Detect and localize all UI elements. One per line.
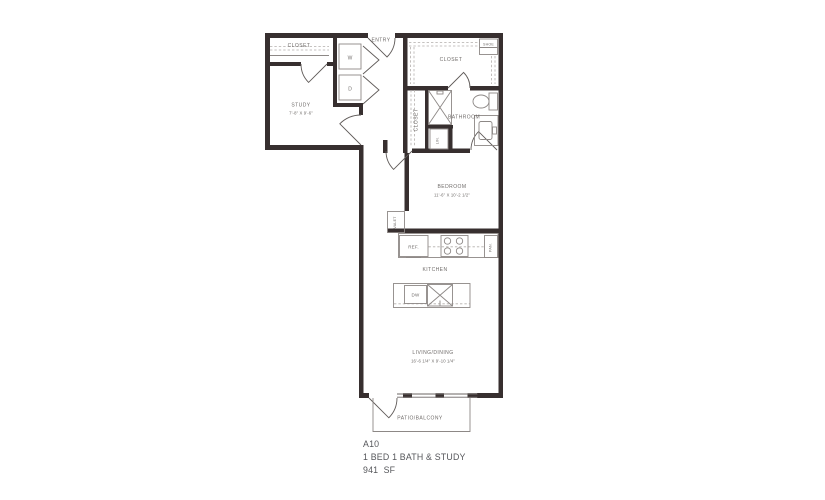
- dryer-door-swing: [363, 76, 379, 104]
- bathroom-label: BATHROOM: [448, 115, 480, 121]
- study-closet-label: CLOSET: [288, 43, 311, 49]
- shelving-dashed: [270, 43, 495, 304]
- shoe-shelf: [480, 39, 498, 55]
- walls: [265, 33, 503, 398]
- toilet-bowl: [473, 95, 489, 108]
- hall-closet-label: CLOSET: [414, 109, 420, 132]
- wall-bath-bottom-stub: [383, 140, 388, 153]
- living-dining-label: LIVING/DINING: [412, 350, 453, 356]
- vanity-faucet: [493, 127, 497, 134]
- floor-plan-page: CLOSET STUDY 7'-8" X 9'-6" W D ENTRY CLO…: [0, 0, 825, 500]
- bedroom-label: BEDROOM: [438, 184, 467, 190]
- wall-wd-bottom: [333, 103, 363, 107]
- stove-burner: [456, 248, 462, 254]
- washer-door-swing: [363, 46, 379, 74]
- patio-label: PATIO/BALCONY: [397, 416, 443, 422]
- walkin-closet-label: CLOSET: [440, 57, 463, 63]
- fixtures: [270, 39, 498, 432]
- wall-top-right: [395, 33, 503, 38]
- unit-description: 1 BED 1 BATH & STUDY: [363, 452, 466, 462]
- wall-bottom-right: [477, 393, 503, 398]
- wall-closet-shower: [425, 88, 429, 153]
- dryer-label: D: [348, 87, 352, 93]
- refrigerator-label: REF.: [408, 245, 419, 250]
- shoe-label: SHOE: [483, 43, 494, 47]
- stove-burner: [444, 248, 450, 254]
- wall-study-closet: [265, 62, 301, 66]
- washer-label: W: [348, 56, 353, 62]
- wall-study-bottom: [265, 145, 363, 150]
- study-dims: 7'-8" X 9'-6": [289, 111, 313, 116]
- door-swings: [301, 38, 497, 418]
- vanity-sink: [479, 122, 492, 140]
- wall-hall-right: [403, 38, 408, 153]
- valet-label: VALET: [393, 216, 397, 229]
- stove-burner: [444, 238, 450, 244]
- bedroom-dims: 11'-6" X 10'-2 1/2": [434, 193, 470, 198]
- study-door: [340, 115, 361, 145]
- shower-head: [437, 91, 443, 94]
- walkin-shelf-top: [409, 43, 478, 47]
- floor-plan-svg: CLOSET STUDY 7'-8" X 9'-6" W D ENTRY CLO…: [0, 0, 825, 500]
- wall-living-left: [359, 145, 364, 398]
- stove-burner: [456, 238, 462, 244]
- unit-number: A10: [363, 439, 379, 449]
- wall-bottom-left: [359, 393, 369, 398]
- title-block: A10 1 BED 1 BATH & STUDY 941 SF: [363, 439, 466, 475]
- wall-study-right-stub: [359, 107, 363, 115]
- dishwasher-label: DW: [412, 293, 420, 298]
- study-label: STUDY: [291, 103, 310, 109]
- wall-left: [265, 33, 270, 150]
- wall-closet-bottom-b: [470, 86, 499, 91]
- living-dining-dims: 16'-6 1/4" X 9'-10 1/4": [411, 359, 455, 364]
- walkin-shelf-right: [492, 56, 496, 84]
- walkin-closet-door: [448, 72, 470, 88]
- pantry-label: PAN.: [489, 243, 493, 252]
- wall-bedroom-left: [405, 153, 410, 211]
- linen-label: LIN.: [436, 137, 440, 144]
- wall-top-left: [265, 33, 368, 38]
- unit-area: 941 SF: [363, 465, 396, 475]
- wall-right: [499, 33, 504, 398]
- kitchen-label: KITCHEN: [422, 267, 447, 273]
- toilet-tank: [489, 93, 498, 110]
- walkin-shelf-left: [411, 47, 415, 84]
- entry-label: ENTRY: [371, 38, 390, 44]
- wall-wd-left: [333, 38, 337, 107]
- study-closet-door: [301, 64, 327, 82]
